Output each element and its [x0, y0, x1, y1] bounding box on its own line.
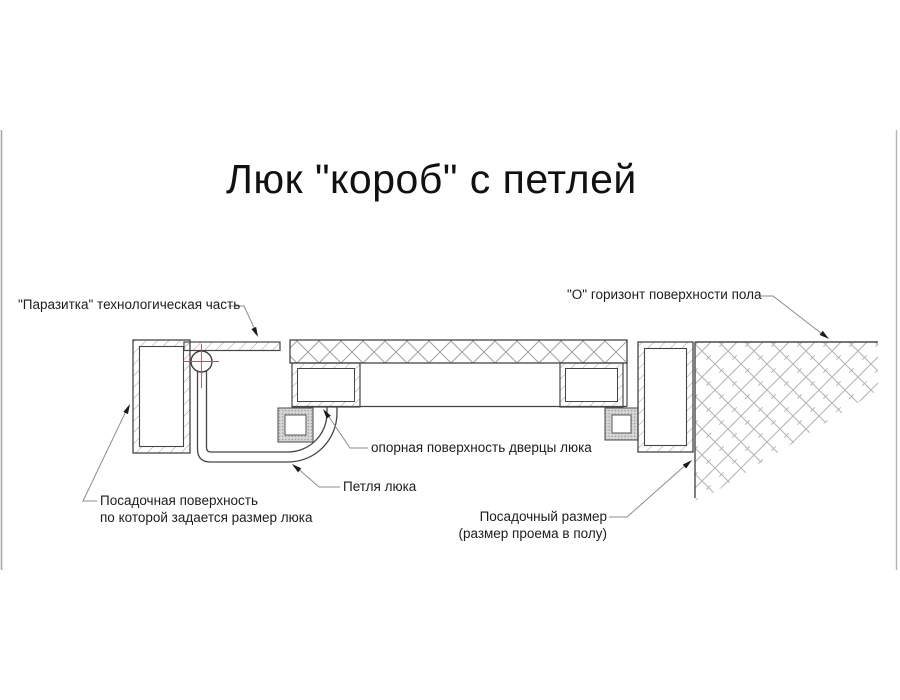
arrow-hinge: [290, 462, 301, 472]
label-hinge: Петля люка: [343, 479, 416, 495]
label-seating-size-line2: (размер проема в полу): [458, 525, 607, 542]
label-seating-surface-line2: по которой задается размер люка: [100, 509, 313, 526]
diagram-title: Люк "короб" с петлей: [226, 156, 637, 203]
arrow-seating-surface: [123, 403, 132, 414]
leader-seating-size: [609, 462, 689, 517]
leader-seating-surface: [83, 407, 128, 501]
hatch-door: [290, 340, 627, 407]
label-seating-surface-line1: Посадочная поверхность: [100, 492, 313, 509]
label-bearing-surface: опорная поверхность дверцы люка: [371, 440, 592, 456]
leader-hinge: [295, 466, 340, 487]
door-right-profile: [560, 363, 623, 407]
floor-hatch: [695, 342, 878, 500]
arrow-floor-horizon: [820, 331, 831, 341]
left-frame-profile: [133, 340, 190, 453]
parasitka-plate: [184, 342, 280, 351]
label-seating-size-line1: Посадочный размер: [458, 508, 607, 525]
technical-drawing: [0, 0, 900, 700]
door-left-profile: [292, 363, 360, 407]
page-background: Люк "короб" с петлей "Паразитка" техноло…: [0, 0, 900, 700]
door-top-plate: [290, 340, 627, 363]
label-floor-horizon: "О" горизонт поверхности пола: [567, 287, 762, 303]
label-parasitka: "Паразитка" технологическая часть: [18, 297, 240, 313]
label-seating-surface: Посадочная поверхность по которой задает…: [100, 492, 313, 526]
hinge-mount-right: [605, 408, 638, 440]
leader-bearing: [325, 411, 368, 448]
leader-floor-horizon: [760, 296, 826, 337]
label-seating-size: Посадочный размер (размер проема в полу): [458, 508, 607, 542]
arrow-seating-size: [683, 458, 694, 468]
arrow-parasitka: [251, 327, 260, 338]
hinge-mount-left: [278, 408, 313, 442]
right-frame-profile: [638, 342, 693, 452]
